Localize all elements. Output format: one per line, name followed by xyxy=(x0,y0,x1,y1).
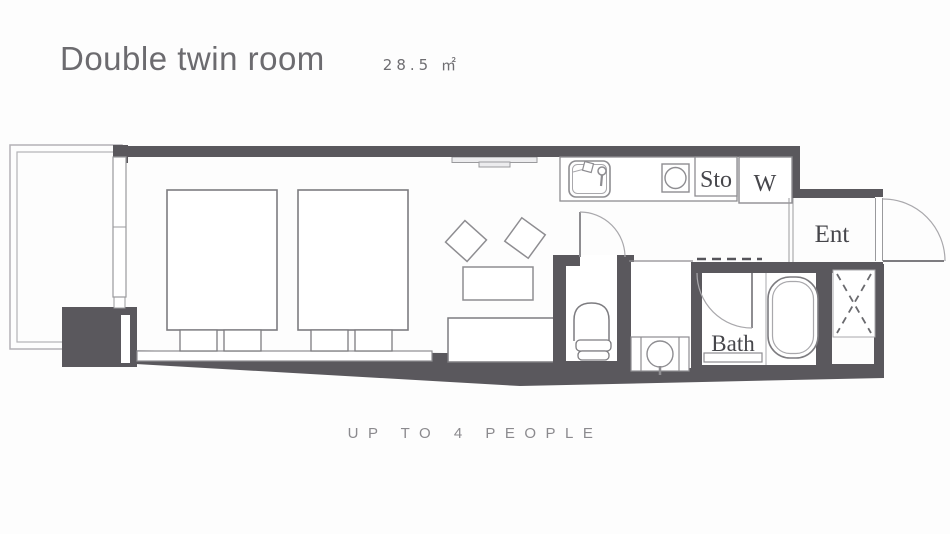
washbasin-bowl-icon xyxy=(647,341,673,367)
bath-step xyxy=(704,353,762,362)
wall-entrance-top xyxy=(793,189,883,198)
window-sill xyxy=(114,296,125,308)
shaft-box xyxy=(833,270,875,337)
headboard-shelf xyxy=(137,351,432,361)
bed-mattress xyxy=(167,190,277,330)
faucet-stem xyxy=(601,175,602,186)
floorplan-drawing: Sto W xyxy=(0,0,950,534)
toilet-door-arc xyxy=(580,212,625,257)
room-area-label: 28.5 ㎡ xyxy=(383,54,460,75)
pillow xyxy=(180,330,217,351)
pillow xyxy=(355,330,392,351)
entrance-opening xyxy=(875,197,883,261)
tv xyxy=(452,157,537,167)
cushion xyxy=(446,221,487,262)
toilet-door-opening xyxy=(580,255,617,267)
cushion xyxy=(505,218,546,259)
floorplan-image: Double twin room 28.5 ㎡ xyxy=(0,0,950,534)
capacity-label: UP TO 4 PEOPLE xyxy=(0,425,950,442)
sofa-bench xyxy=(448,318,557,362)
soap-dish xyxy=(582,161,593,172)
room-label-bath: Bath xyxy=(711,331,755,356)
wall-bath-left xyxy=(691,262,702,365)
page-title: Double twin room xyxy=(60,40,325,78)
bed-mattress xyxy=(298,190,408,330)
washer-room: W xyxy=(739,157,792,203)
pipe-shaft xyxy=(833,270,875,337)
toilet-base xyxy=(578,351,609,360)
entrance-door-arc xyxy=(883,199,945,261)
toilet-tank xyxy=(576,340,611,351)
room-label-washer: W xyxy=(754,171,777,197)
room-label-entrance: Ent xyxy=(815,221,850,248)
toilet-room xyxy=(553,212,634,368)
washbasin-room xyxy=(629,261,693,375)
table xyxy=(463,267,533,300)
toilet-icon xyxy=(574,303,609,341)
left-wall-slit xyxy=(121,315,130,363)
tv-mount xyxy=(479,162,510,167)
pillow xyxy=(224,330,261,351)
header: Double twin room 28.5 ㎡ xyxy=(60,40,460,78)
wall-top-main xyxy=(118,146,800,157)
entrance-room: Ent xyxy=(789,197,945,262)
storage-room: Sto xyxy=(695,157,737,196)
room-label-storage: Sto xyxy=(700,167,732,193)
pillow xyxy=(311,330,348,351)
bed-2 xyxy=(298,190,408,351)
bed-1 xyxy=(167,190,277,351)
bath-room: Bath xyxy=(697,273,818,365)
faucet-icon xyxy=(598,167,606,175)
window xyxy=(113,157,126,297)
